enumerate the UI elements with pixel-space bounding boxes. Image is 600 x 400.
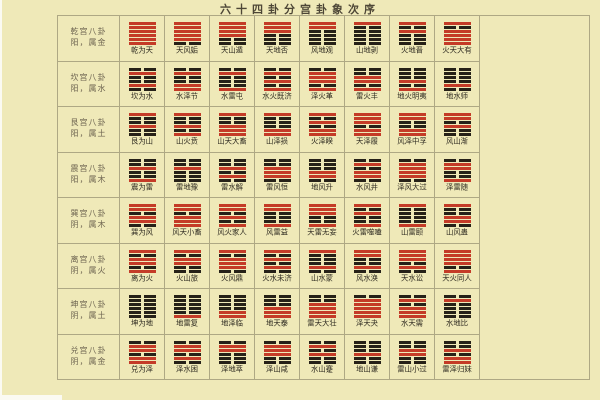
yang-line [354,307,381,310]
yin-line [444,212,471,215]
hexagram-name: 天山遁 [221,47,243,54]
hexagram-symbol [354,250,381,273]
hexagram-symbol [174,341,201,364]
hexagram-name: 天风姤 [176,47,198,54]
palace-row: 震宫八卦阳，属木震为雷雷地豫雷水解雷风恒地风升水风井泽风大过泽雷随 [58,153,479,199]
hexagram-cell: 雷水解 [210,153,255,198]
yin-line [309,254,336,257]
hexagram-symbol [264,250,291,273]
yang-line [174,26,201,29]
yang-line [129,357,156,360]
yang-line [219,345,246,348]
yin-line [219,76,246,79]
yin-line [264,117,291,120]
hexagram-name: 火山旅 [176,275,198,282]
hexagram-name: 地水师 [446,93,468,100]
hexagram-symbol [129,113,156,136]
hexagram-cell: 风泽中孚 [390,107,435,152]
hexagram-cell: 天山遁 [210,16,255,61]
hexagram-symbol [264,22,291,45]
yin-line [174,80,201,83]
yin-line [354,72,381,75]
yang-line [129,125,156,128]
palace-row: 兑宫八卦阴，属金兑为泽泽水困泽地萃泽山咸水山蹇地山谦雷山小过雷泽归妹 [58,335,479,380]
hexagram-symbol [444,22,471,45]
yang-line [444,258,471,261]
yang-line [354,353,381,356]
hexagram-cell: 地泽临 [210,289,255,334]
yang-line [219,26,246,29]
yang-line [219,30,246,33]
yin-line [399,357,426,360]
yang-line [354,299,381,302]
hexagram-cell: 火雷噬嗑 [345,198,390,243]
yang-line [264,171,291,174]
yang-line [309,113,336,116]
yang-line [354,315,381,318]
yin-line [354,38,381,41]
yin-line [129,117,156,120]
hexagram-name: 地雷复 [176,320,198,327]
yin-line [264,179,291,182]
hexagram-name: 风雷益 [266,229,288,236]
yin-line [444,341,471,344]
yin-line [354,349,381,352]
hexagram-symbol [219,250,246,273]
yin-line [219,163,246,166]
hexagram-symbol [444,341,471,364]
hexagram-symbol [264,204,291,227]
yin-line [264,270,291,273]
hexagram-name: 地泽临 [221,320,243,327]
yin-line [174,163,201,166]
yin-line [309,361,336,364]
yin-line [444,68,471,71]
hexagram-name: 雷地豫 [176,184,198,191]
yang-line [264,250,291,253]
yang-line [219,175,246,178]
palace-label: 坎宫八卦阳，属水 [58,62,120,107]
yin-line [129,80,156,83]
palace-attribute: 阳，属木 [71,176,107,185]
yang-line [399,113,426,116]
palace-name: 兑宫八卦 [71,347,107,356]
hexagram-name: 火天大有 [442,47,471,54]
yin-line [219,357,246,360]
hexagram-cell: 水天需 [390,289,435,334]
hexagram-name: 山风蛊 [446,229,468,236]
yin-line [444,303,471,306]
hexagram-name: 雷水解 [221,184,243,191]
yang-line [219,349,246,352]
yin-line [174,175,201,178]
yang-line [444,250,471,253]
yang-line [354,80,381,83]
yin-line [174,42,201,45]
yang-line [399,117,426,120]
hexagram-name: 风地观 [311,47,333,54]
yang-line [219,125,246,128]
hexagram-name: 地山谦 [356,366,378,373]
yang-line [129,30,156,33]
yin-line [354,34,381,37]
yin-line [399,34,426,37]
hexagram-cell: 泽天夬 [345,289,390,334]
yin-line [399,72,426,75]
yin-line [219,117,246,120]
palace-row: 乾宫八卦阳，属金乾为天天风姤天山遁天地否风地观山地剥火地晋火天大有 [58,16,479,62]
yang-line [444,204,471,207]
yang-line [444,357,471,360]
hexagram-symbol [309,159,336,182]
yang-line [309,80,336,83]
hexagram-cell: 地风升 [300,153,345,198]
yang-line [129,345,156,348]
hexagram-symbol [174,68,201,91]
hexagram-symbol [444,250,471,273]
yang-line [399,88,426,91]
yin-line [444,224,471,227]
yin-line [444,26,471,29]
yin-line [399,179,426,182]
yang-line [264,345,291,348]
hexagram-name: 水风井 [356,184,378,191]
yin-line [444,121,471,124]
yin-line [354,42,381,45]
yin-line [354,258,381,261]
yin-line [264,295,291,298]
hexagram-name: 艮为山 [131,138,153,145]
palace-row: 巽宫八卦阴，属木巽为风风天小畜风火家人风雷益天雷无妄火雷噬嗑山雷颐山风蛊 [58,198,479,244]
hexagram-cell: 水火既济 [255,62,300,107]
yang-line [309,88,336,91]
yin-line [399,208,426,211]
yang-line [309,208,336,211]
yang-line [444,84,471,87]
yang-line [399,171,426,174]
hexagram-name: 雷泽归妹 [442,366,471,373]
yin-line [129,163,156,166]
yang-line [444,117,471,120]
yang-line [354,76,381,79]
yang-line [174,262,201,265]
yang-line [399,311,426,314]
yin-line [399,159,426,162]
hexagram-cell: 水雷屯 [210,62,255,107]
yin-line [129,171,156,174]
yin-line [354,68,381,71]
yin-line [309,220,336,223]
yang-line [264,258,291,261]
yang-line [129,250,156,253]
yin-line [174,295,201,298]
yin-line [309,299,336,302]
yang-line [399,299,426,302]
yin-line [174,311,201,314]
hexagram-name: 风水涣 [356,275,378,282]
yang-line [444,38,471,41]
palace-label: 离宫八卦阴，属火 [58,244,120,289]
yin-line [174,353,201,356]
yang-line [309,307,336,310]
yang-line [264,315,291,318]
yin-line [309,125,336,128]
yang-line [309,76,336,79]
yang-line [219,266,246,269]
hexagram-cell: 泽山咸 [255,335,300,380]
yin-line [219,303,246,306]
hexagram-cell: 泽风大过 [390,153,435,198]
yang-line [129,179,156,182]
yin-line [309,167,336,170]
palace-name: 离宫八卦 [71,256,107,265]
yang-line [444,216,471,219]
yang-line [399,254,426,257]
yang-line [444,163,471,166]
yang-line [174,208,201,211]
yin-line [309,262,336,265]
yang-line [174,38,201,41]
yang-line [354,254,381,257]
yin-line [399,295,426,298]
yang-line [309,22,336,25]
yin-line [354,84,381,87]
yin-line [174,179,201,182]
hexagram-name: 火风鼎 [221,275,243,282]
hexagram-cell: 雷天大壮 [300,289,345,334]
yang-line [129,26,156,29]
hexagram-name: 水泽节 [176,93,198,100]
yang-line [129,42,156,45]
yang-line [444,167,471,170]
yang-line [399,353,426,356]
yin-line [309,68,336,71]
hexagram-cell: 雷风恒 [255,153,300,198]
hexagram-symbol [264,68,291,91]
hexagram-symbol [264,113,291,136]
hexagram-symbol [219,295,246,318]
yin-line [129,341,156,344]
hexagram-name: 火泽睽 [311,138,333,145]
yin-line [309,163,336,166]
hexagram-cell: 火天大有 [435,16,479,61]
hexagram-cell: 地水师 [435,62,479,107]
yin-line [129,299,156,302]
yin-line [444,159,471,162]
yang-line [444,125,471,128]
yang-line [399,30,426,33]
yin-line [399,125,426,128]
yin-line [129,254,156,257]
yin-line [129,121,156,124]
hexagram-symbol [264,295,291,318]
hexagram-cell: 山火贲 [165,107,210,152]
hexagram-name: 坎为水 [131,93,153,100]
palace-name: 震宫八卦 [71,165,107,174]
hexagram-cell: 泽火革 [300,62,345,107]
hexagram-name: 山天大畜 [217,138,246,145]
hexagram-symbol [309,113,336,136]
hexagram-name: 火雷噬嗑 [352,229,381,236]
yang-line [309,224,336,227]
hexagram-cell: 天雷无妄 [300,198,345,243]
yin-line [264,76,291,79]
hexagram-symbol [264,341,291,364]
yang-line [354,22,381,25]
yang-line [174,258,201,261]
yang-line [444,34,471,37]
hexagram-name: 泽天夬 [356,320,378,327]
hexagram-name: 风天小畜 [172,229,201,236]
yang-line [219,34,246,37]
hexagram-cell: 风水涣 [345,244,390,289]
hexagram-symbol [354,22,381,45]
yang-line [399,167,426,170]
yin-line [264,163,291,166]
yang-line [174,216,201,219]
yang-line [129,72,156,75]
hexagram-symbol [129,250,156,273]
yang-line [354,224,381,227]
yin-line [129,307,156,310]
yin-line [444,76,471,79]
yin-line [354,295,381,298]
yang-line [399,80,426,83]
palace-attribute: 阳，属土 [71,130,107,139]
yin-line [219,353,246,356]
yang-line [309,250,336,253]
yang-line [219,208,246,211]
yang-line [264,113,291,116]
yin-line [444,307,471,310]
hexagram-symbol [309,250,336,273]
yin-line [264,125,291,128]
hexagram-cell: 艮为山 [120,107,165,152]
yin-line [264,299,291,302]
hexagram-symbol [444,68,471,91]
yin-line [129,68,156,71]
hexagram-name: 风山渐 [446,138,468,145]
hexagram-symbol [399,68,426,91]
yin-line [354,270,381,273]
yang-line [309,315,336,318]
hexagram-cell: 山泽损 [255,107,300,152]
yin-line [174,171,201,174]
yin-line [129,353,156,356]
hexagram-symbol [399,295,426,318]
yang-line [399,133,426,136]
yin-line [309,117,336,120]
yin-line [219,80,246,83]
yang-line [309,121,336,124]
hexagram-name: 泽地萃 [221,366,243,373]
yin-line [174,299,201,302]
yin-line [174,307,201,310]
yang-line [354,88,381,91]
yang-line [174,34,201,37]
yang-line [129,84,156,87]
yin-line [219,270,246,273]
palace-name: 坤宫八卦 [71,301,107,310]
hexagram-cell: 天水讼 [390,244,435,289]
hexagram-symbol [129,68,156,91]
yang-line [174,349,201,352]
yang-line [219,216,246,219]
hexagram-symbol [399,204,426,227]
yin-line [174,303,201,306]
yang-line [264,72,291,75]
yang-line [354,175,381,178]
yin-line [219,171,246,174]
yin-line [129,311,156,314]
hexagram-symbol [354,204,381,227]
hexagram-name: 地风升 [311,184,333,191]
yang-line [354,250,381,253]
hexagram-name: 风火家人 [217,229,246,236]
yang-line [219,113,246,116]
hexagram-cell: 风山渐 [435,107,479,152]
hexagram-symbol [219,113,246,136]
yin-line [264,121,291,124]
hexagram-symbol [309,68,336,91]
yin-line [399,76,426,79]
yin-line [219,38,246,41]
yang-line [309,204,336,207]
yin-line [444,345,471,348]
scan-edge-left [0,0,2,400]
yang-line [174,204,201,207]
yin-line [309,159,336,162]
hexagram-symbol [309,204,336,227]
hexagram-cell: 火风鼎 [210,244,255,289]
hexagram-name: 地火明夷 [397,93,426,100]
yin-line [219,341,246,344]
hexagram-cell: 火地晋 [390,16,435,61]
yin-line [264,34,291,37]
hexagram-cell: 火水未济 [255,244,300,289]
hexagram-cell: 地天泰 [255,289,300,334]
hexagram-cell: 雷火丰 [345,62,390,107]
yang-line [354,303,381,306]
yang-line [354,212,381,215]
yin-line [309,295,336,298]
yin-line [174,341,201,344]
hexagram-symbol [354,68,381,91]
yin-line [399,26,426,29]
yin-line [129,88,156,91]
yin-line [264,303,291,306]
yin-line [444,88,471,91]
yin-line [399,38,426,41]
palace-attribute: 阴，属火 [71,267,107,276]
palace-attribute: 阳，属金 [71,39,107,48]
hexagram-symbol [399,159,426,182]
yin-line [444,80,471,83]
yin-line [399,262,426,265]
yin-line [129,295,156,298]
yang-line [309,133,336,136]
yin-line [219,307,246,310]
hexagram-name: 雷风恒 [266,184,288,191]
hexagram-symbol [174,159,201,182]
yang-line [174,72,201,75]
yang-line [354,171,381,174]
yang-line [264,133,291,136]
hexagram-name: 天泽履 [356,138,378,145]
hexagram-cell: 地山谦 [345,335,390,380]
palace-name: 乾宫八卦 [71,28,107,37]
yin-line [219,179,246,182]
